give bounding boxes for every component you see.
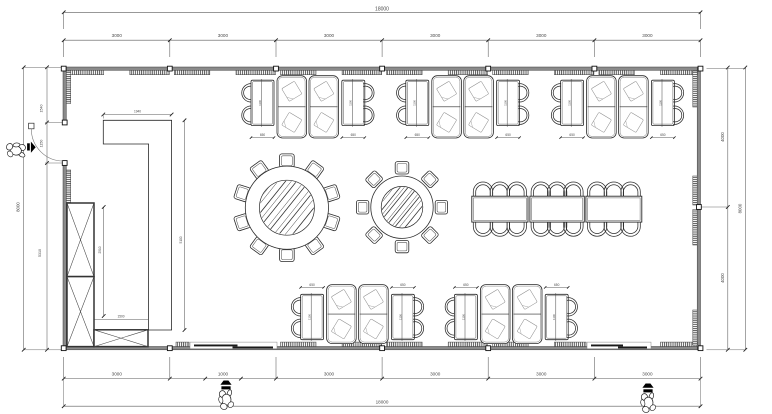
svg-text:3000: 3000: [536, 372, 547, 377]
svg-text:1150: 1150: [40, 140, 44, 148]
svg-text:3000: 3000: [112, 33, 123, 38]
svg-text:3000: 3000: [642, 372, 653, 377]
svg-text:2510: 2510: [98, 246, 102, 253]
svg-text:1100: 1100: [568, 99, 572, 105]
svg-text:3000: 3000: [112, 372, 123, 377]
svg-text:1100: 1100: [658, 99, 662, 105]
svg-text:5310: 5310: [38, 249, 42, 257]
svg-text:1100: 1100: [552, 314, 556, 320]
svg-text:650: 650: [505, 133, 511, 137]
svg-text:1100: 1100: [413, 99, 417, 105]
svg-text:3000: 3000: [642, 33, 653, 38]
svg-text:1540: 1540: [40, 105, 44, 113]
svg-text:18000: 18000: [375, 6, 389, 12]
svg-text:650: 650: [351, 133, 357, 137]
svg-text:1100: 1100: [349, 99, 353, 105]
svg-text:3000: 3000: [536, 33, 547, 38]
svg-text:3000: 3000: [218, 33, 229, 38]
svg-text:1940: 1940: [134, 110, 141, 114]
svg-text:650: 650: [660, 133, 666, 137]
svg-text:5100: 5100: [179, 236, 183, 243]
svg-text:1100: 1100: [258, 99, 262, 105]
svg-text:3000: 3000: [324, 33, 335, 38]
svg-text:4000: 4000: [720, 132, 725, 142]
svg-text:650: 650: [309, 283, 315, 287]
svg-text:8000: 8000: [738, 203, 743, 213]
svg-text:4000: 4000: [720, 273, 725, 283]
svg-text:650: 650: [554, 283, 560, 287]
svg-text:18000: 18000: [376, 399, 389, 404]
svg-text:650: 650: [260, 133, 266, 137]
svg-text:1100: 1100: [308, 314, 312, 320]
svg-text:650: 650: [569, 133, 575, 137]
svg-text:8000: 8000: [16, 202, 21, 212]
svg-text:3000: 3000: [430, 33, 441, 38]
svg-text:3000: 3000: [324, 372, 335, 377]
svg-text:3000: 3000: [430, 372, 441, 377]
svg-text:650: 650: [463, 283, 469, 287]
svg-text:1000: 1000: [218, 372, 229, 377]
svg-text:1100: 1100: [504, 99, 508, 105]
svg-text:650: 650: [400, 283, 406, 287]
svg-text:1100: 1100: [461, 314, 465, 320]
svg-text:1100: 1100: [398, 314, 402, 320]
svg-text:650: 650: [415, 133, 421, 137]
svg-text:1500: 1500: [117, 315, 124, 319]
